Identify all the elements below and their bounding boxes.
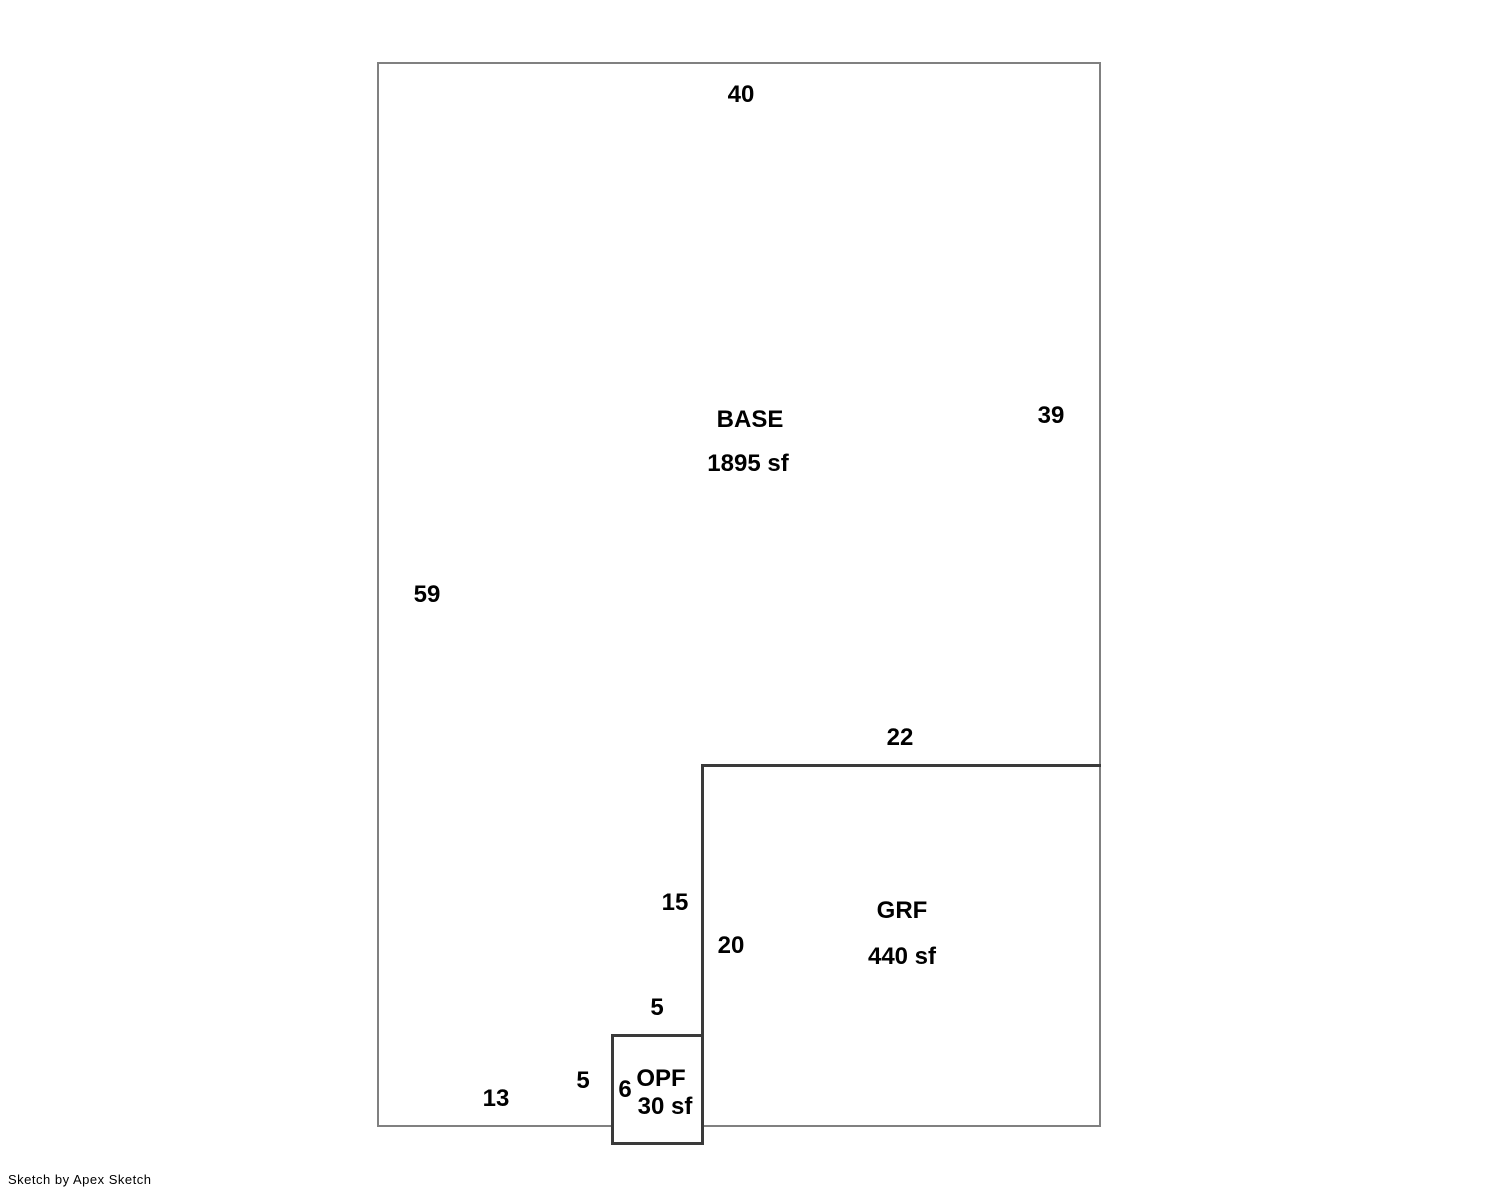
dim-base-bottom-left: 13 (483, 1087, 510, 1111)
dim-opf-top: 5 (650, 996, 663, 1020)
grf-left-wall (701, 764, 704, 1036)
base-area-size: 1895 sf (707, 452, 788, 476)
floorplan-canvas: 40 39 59 22 15 20 5 5 6 13 BASE 1895 sf … (0, 0, 1492, 1190)
dim-divider-base-side: 15 (662, 891, 689, 915)
opf-area-name: OPF (636, 1067, 685, 1091)
dim-grf-top: 22 (887, 726, 914, 750)
dim-base-top: 40 (728, 83, 755, 107)
dim-grf-left: 20 (718, 934, 745, 958)
base-perimeter-outline (377, 62, 1101, 1127)
grf-area-size: 440 sf (868, 945, 936, 969)
dim-opf-height: 6 (618, 1078, 631, 1102)
sketch-credit: Sketch by Apex Sketch (8, 1172, 151, 1187)
dim-base-left: 59 (414, 583, 441, 607)
grf-area-name: GRF (877, 899, 928, 923)
grf-top-wall (701, 764, 1101, 767)
opf-area-size: 30 sf (638, 1095, 693, 1119)
dim-base-right: 39 (1038, 404, 1065, 428)
base-area-name: BASE (717, 408, 784, 432)
dim-opf-left-inner: 5 (576, 1069, 589, 1093)
